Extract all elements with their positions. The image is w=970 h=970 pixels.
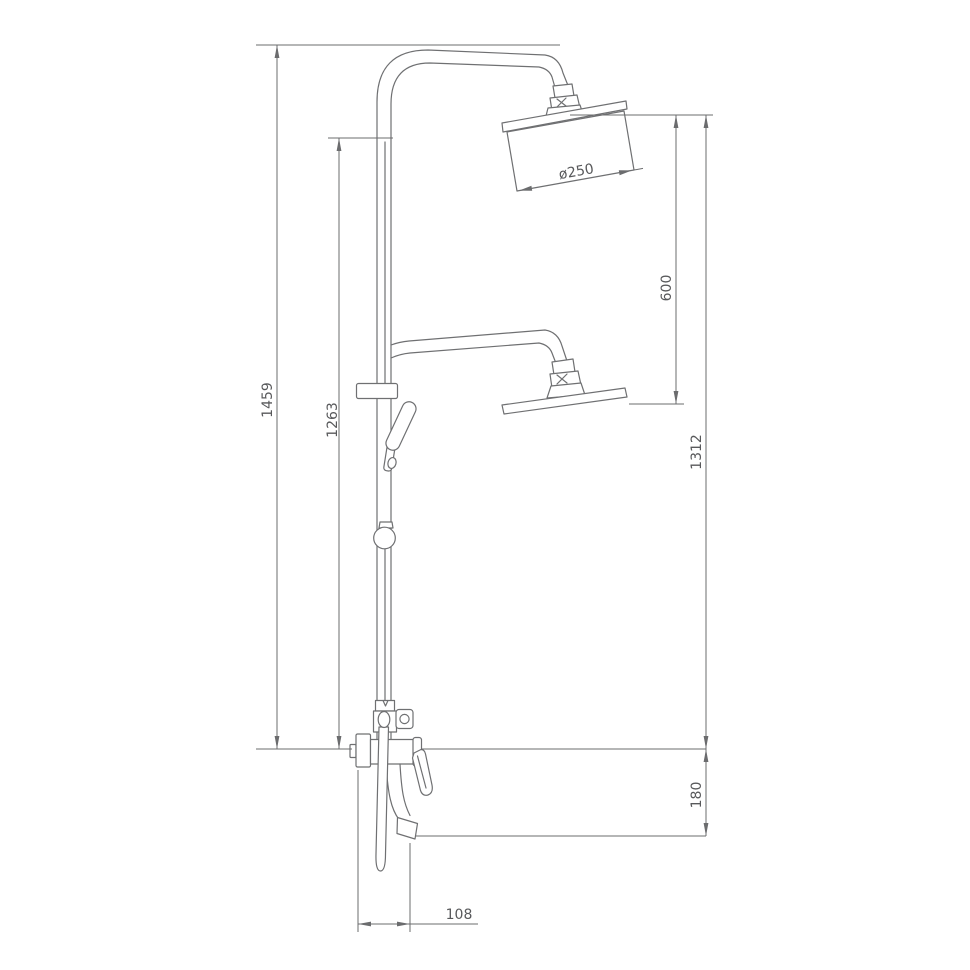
dimension-label-head-spacing: 600: [659, 275, 675, 302]
spout-nozzle: [397, 818, 418, 840]
extension-tick-head-right: [634, 168, 643, 170]
hand-shower: [383, 399, 418, 471]
dimension-label-overall-height: 1459: [260, 382, 276, 418]
valve-handle: [413, 750, 433, 796]
shower-technical-drawing: 1459 1263 ø250 600: [0, 0, 970, 970]
dimension-label-spout-reach: 108: [446, 907, 473, 923]
dimension-label-spout-drop: 180: [689, 782, 705, 809]
diverter-outlet: [396, 710, 413, 729]
dimension-label-riser-top-height: 1312: [689, 434, 705, 470]
slide-rail-bracket: [357, 384, 398, 399]
dimension-annotations: 1459 1263 ø250 600: [256, 45, 713, 932]
valve-body: [371, 740, 414, 765]
tub-spout: [386, 764, 418, 839]
drawing-canvas: 1459 1263 ø250 600: [0, 0, 970, 970]
dimension-label-rail-height: 1263: [325, 402, 341, 438]
dimension-riser-top-height: 1312: [689, 115, 708, 749]
dimension-spout-drop: 180: [416, 749, 708, 836]
dimension-rail-height: 1263: [325, 138, 393, 749]
shower-hose: [376, 712, 390, 872]
lower-shower-arm: [391, 330, 568, 366]
hose-nut: [378, 712, 390, 728]
hand-shower-wand: [384, 399, 419, 452]
lower-swivel-joint: [547, 359, 585, 398]
wall-escutcheon: [356, 734, 371, 767]
wall-nut: [350, 745, 356, 758]
